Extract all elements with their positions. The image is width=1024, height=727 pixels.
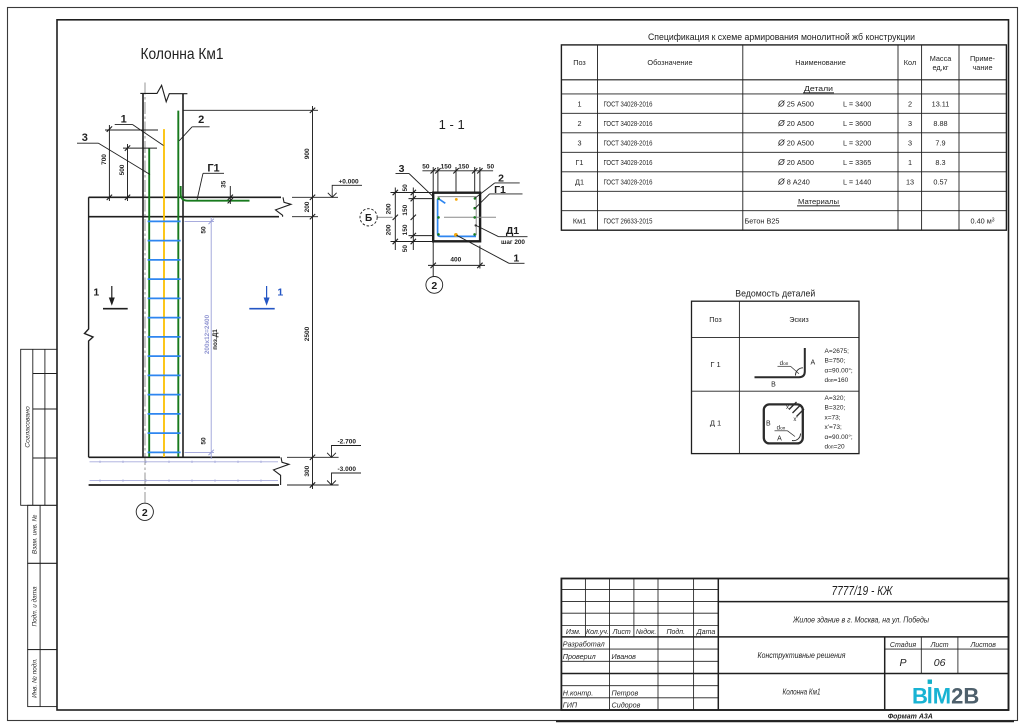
svg-text:Км1: Км1 (573, 217, 586, 226)
svg-text:ГИП: ГИП (563, 701, 578, 710)
svg-text:Колонна Км1: Колонна Км1 (141, 46, 224, 63)
svg-text:200: 200 (385, 224, 392, 235)
svg-text:0.57: 0.57 (933, 178, 947, 187)
svg-text:В=750;: В=750; (825, 358, 846, 365)
svg-text:150: 150 (402, 224, 409, 235)
svg-text:1 - 1: 1 - 1 (439, 118, 465, 132)
svg-text:900: 900 (304, 148, 311, 159)
svg-text:500: 500 (119, 164, 126, 175)
svg-text:200x12=2400: 200x12=2400 (204, 314, 211, 354)
svg-text:1: 1 (121, 114, 127, 126)
svg-text:А=2675;: А=2675; (825, 348, 850, 355)
svg-text:50: 50 (402, 184, 409, 192)
svg-text:13.11: 13.11 (932, 100, 950, 109)
svg-text:06: 06 (934, 657, 946, 669)
svg-text:L = 3600: L = 3600 (843, 119, 871, 128)
svg-text:Поз: Поз (709, 315, 722, 324)
svg-text:3: 3 (908, 139, 912, 148)
svg-text:Поз: Поз (573, 58, 586, 67)
svg-text:1: 1 (513, 253, 519, 265)
svg-text:50: 50 (402, 245, 409, 253)
svg-text:2: 2 (431, 280, 437, 292)
svg-text:Стадия: Стадия (890, 641, 916, 649)
svg-text:Листов: Листов (969, 642, 996, 649)
svg-text:35: 35 (220, 180, 227, 188)
svg-text:А=320;: А=320; (825, 395, 846, 402)
svg-text:Разработал: Разработал (563, 640, 605, 649)
svg-text:B: B (771, 382, 776, 389)
svg-text:Наименование: Наименование (795, 58, 846, 67)
svg-text:400: 400 (450, 257, 461, 264)
svg-text:3: 3 (577, 139, 581, 148)
svg-text:Жилое здание в г. Москва, на у: Жилое здание в г. Москва, на ул. Победы (792, 616, 929, 625)
svg-text:2500: 2500 (304, 326, 311, 341)
svg-text:dоп: dоп (777, 424, 786, 431)
svg-text:dоп=160: dоп=160 (825, 377, 849, 384)
svg-text:3: 3 (908, 119, 912, 128)
svg-text:700: 700 (101, 154, 108, 165)
svg-text:Ведомость деталей: Ведомость деталей (735, 289, 815, 299)
svg-text:Д1: Д1 (575, 178, 584, 187)
svg-text:8.3: 8.3 (935, 158, 945, 167)
svg-text:2: 2 (198, 114, 204, 126)
svg-text:№док.: №док. (636, 628, 657, 636)
svg-text:Масса: Масса (930, 54, 953, 63)
svg-text:Подп. и дата: Подп. и дата (31, 586, 39, 626)
svg-text:-2.700: -2.700 (338, 439, 357, 446)
svg-text:Иванов: Иванов (612, 652, 637, 661)
svg-text:50: 50 (201, 226, 208, 234)
svg-text:x=73;: x=73; (825, 415, 841, 422)
svg-text:Г 1: Г 1 (710, 360, 720, 369)
svg-text:Инв. № подл.: Инв. № подл. (31, 658, 39, 698)
svg-text:Р: Р (899, 657, 906, 669)
svg-text:2: 2 (908, 100, 912, 109)
svg-text:7.9: 7.9 (935, 139, 945, 148)
svg-text:1: 1 (577, 100, 581, 109)
svg-text:M: M (933, 683, 951, 708)
svg-text:Лист: Лист (930, 642, 949, 649)
svg-text:ГОСТ 34028-2016: ГОСТ 34028-2016 (604, 139, 653, 148)
svg-text:x'=73;: x'=73; (825, 424, 843, 431)
svg-text:α=90.00°;: α=90.00°; (825, 366, 853, 374)
svg-text:Подп.: Подп. (666, 628, 685, 636)
svg-text:Колонна Км1: Колонна Км1 (783, 688, 821, 697)
svg-text:Спецификация к схеме армирован: Спецификация к схеме армирования монолит… (648, 32, 915, 42)
svg-text:50: 50 (422, 164, 430, 171)
svg-text:L = 3365: L = 3365 (843, 158, 871, 167)
svg-text:Кол: Кол (904, 58, 916, 67)
svg-text:Г1: Г1 (207, 163, 219, 175)
svg-text:Дата: Дата (696, 629, 716, 636)
svg-text:L = 1440: L = 1440 (843, 178, 871, 187)
svg-text:150: 150 (402, 204, 409, 215)
svg-text:150: 150 (441, 164, 452, 171)
svg-text:ГОСТ 34028-2016: ГОСТ 34028-2016 (604, 119, 653, 128)
svg-text:Н.контр.: Н.контр. (563, 688, 593, 697)
svg-text:ГОСТ 34028-2016: ГОСТ 34028-2016 (604, 158, 653, 167)
svg-text:dоп: dоп (780, 360, 789, 367)
svg-text:Ø 20 А500: Ø 20 А500 (777, 157, 814, 167)
svg-text:ГОСТ 34028-2016: ГОСТ 34028-2016 (604, 178, 653, 187)
svg-text:Проверил: Проверил (563, 652, 596, 661)
svg-text:Конструктивные решения: Конструктивные решения (758, 651, 847, 660)
svg-text:Эскиз: Эскиз (789, 315, 809, 324)
svg-text:x': x' (793, 417, 797, 423)
svg-text:dоп=20: dоп=20 (825, 444, 846, 451)
svg-text:Г1: Г1 (575, 158, 583, 167)
svg-text:Приме-: Приме- (970, 54, 995, 63)
svg-text:1: 1 (277, 286, 283, 298)
svg-text:поз.Д1: поз.Д1 (212, 329, 219, 350)
svg-text:200: 200 (385, 203, 392, 214)
svg-text:2: 2 (142, 507, 148, 519)
svg-text:13: 13 (906, 178, 914, 187)
svg-text:2B: 2B (951, 683, 979, 708)
svg-text:B: B (766, 421, 771, 428)
svg-text:200: 200 (304, 201, 311, 212)
svg-text:Согласовано: Согласовано (24, 406, 31, 448)
svg-text:x: x (786, 405, 789, 411)
svg-text:1: 1 (93, 286, 99, 298)
svg-text:3: 3 (82, 132, 88, 144)
svg-text:50: 50 (487, 164, 495, 171)
svg-text:L = 3200: L = 3200 (843, 139, 871, 148)
svg-text:A: A (811, 360, 816, 367)
svg-text:A: A (777, 436, 782, 443)
svg-text:1: 1 (908, 158, 912, 167)
svg-text:Д 1: Д 1 (710, 419, 721, 428)
svg-text:8.88: 8.88 (933, 119, 947, 128)
svg-text:+0.000: +0.000 (339, 178, 359, 185)
svg-text:ГОСТ 34028-2016: ГОСТ 34028-2016 (604, 100, 653, 109)
svg-text:50: 50 (201, 437, 208, 445)
svg-text:шаг 200: шаг 200 (501, 239, 525, 246)
svg-text:В=320;: В=320; (825, 404, 846, 411)
svg-text:Материалы: Материалы (798, 197, 839, 206)
svg-text:Обозначение: Обозначение (647, 58, 692, 67)
svg-text:7777/19 - КЖ: 7777/19 - КЖ (832, 583, 894, 598)
svg-text:Ø 20 А500: Ø 20 А500 (777, 138, 814, 148)
svg-text:Петров: Петров (612, 688, 639, 697)
svg-text:Сидоров: Сидоров (612, 701, 641, 710)
svg-text:150: 150 (458, 164, 469, 171)
svg-text:-3.000: -3.000 (338, 466, 357, 473)
svg-text:Изм.: Изм. (566, 629, 581, 636)
svg-text:0.40 м3: 0.40 м3 (970, 217, 994, 226)
svg-text:Д1: Д1 (506, 225, 519, 237)
svg-text:ед,кг: ед,кг (932, 63, 948, 72)
svg-text:300: 300 (304, 465, 311, 476)
svg-text:Ø 8 А240: Ø 8 А240 (777, 177, 810, 187)
svg-text:Ø 25 А500: Ø 25 А500 (777, 99, 814, 109)
svg-text:ГОСТ 26633-2015: ГОСТ 26633-2015 (604, 217, 653, 226)
svg-text:Бетон В25: Бетон В25 (745, 217, 780, 226)
svg-text:2: 2 (577, 119, 581, 128)
svg-text:Лист: Лист (612, 629, 631, 636)
svg-text:Детали: Детали (804, 84, 833, 93)
svg-text:Кол.уч.: Кол.уч. (586, 629, 609, 636)
svg-text:чание: чание (972, 63, 992, 72)
svg-text:Ø 20 А500: Ø 20 А500 (777, 118, 814, 128)
svg-text:B: B (912, 683, 928, 708)
svg-text:Взам. инв. №: Взам. инв. № (32, 514, 39, 554)
svg-text:Формат А3А: Формат А3А (888, 713, 933, 720)
svg-text:α=90.00°;: α=90.00°; (825, 433, 853, 441)
svg-text:Б: Б (365, 213, 372, 224)
svg-text:L = 3400: L = 3400 (843, 100, 871, 109)
